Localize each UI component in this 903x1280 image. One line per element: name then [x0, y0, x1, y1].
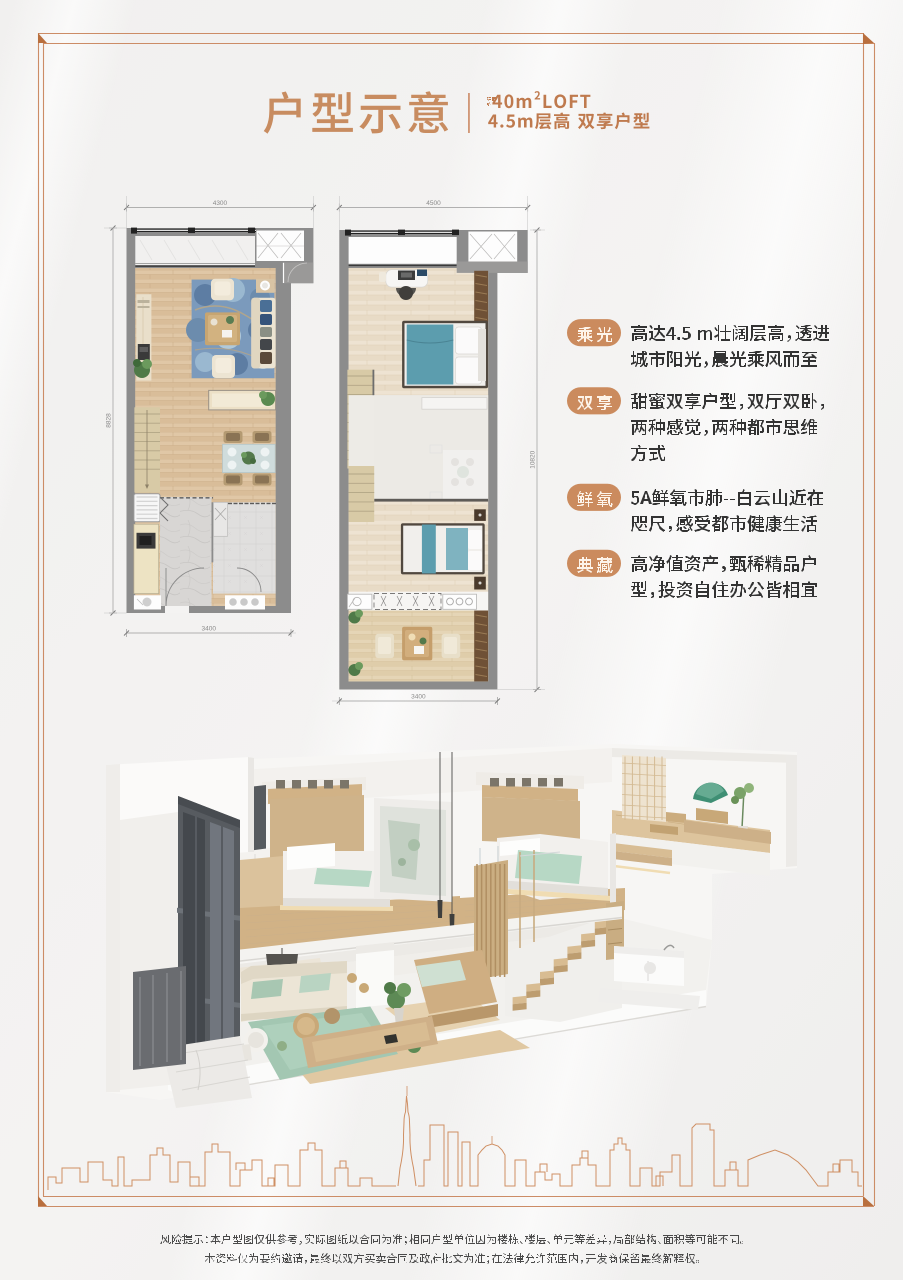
svg-text:4300: 4300 [213, 200, 228, 207]
svg-text:8828: 8828 [106, 413, 113, 428]
svg-text:10820: 10820 [530, 450, 537, 468]
svg-text:3400: 3400 [411, 694, 426, 701]
svg-text:3400: 3400 [202, 626, 217, 633]
svg-text:4500: 4500 [426, 200, 441, 207]
